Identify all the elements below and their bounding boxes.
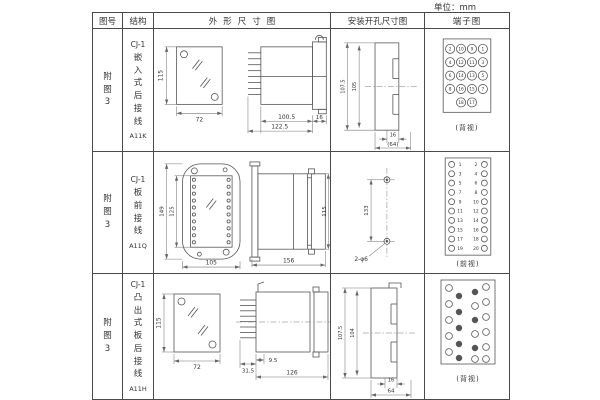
svg-text:9: 9: [459, 199, 462, 205]
dim-label-offset: 9.5: [268, 358, 277, 364]
svg-text:9: 9: [471, 46, 474, 52]
fig-no-text: 附图3: [103, 193, 112, 231]
spec-table: 图号 结构 外形尺寸图 安装开孔尺寸图 端子图 附图3 CJ-1 嵌入式后接线 …: [92, 12, 510, 400]
svg-text:20: 20: [473, 246, 479, 252]
col-header-terminal: 端子图: [425, 13, 509, 29]
side-dimensions: 156 115: [251, 174, 328, 267]
col-header-outline: 外形尺寸图: [154, 13, 331, 29]
outline-diagram-a11k: 115 72: [154, 29, 331, 151]
outline-cell-a11k: 115 72: [154, 29, 331, 152]
mounting-dimensions: 107.5 105 16 (64): [340, 43, 410, 150]
front-dimensions: 115 72: [157, 47, 222, 124]
svg-text:3: 3: [482, 60, 485, 66]
svg-text:6: 6: [475, 181, 478, 187]
side-dimensions: 100.5 122.5 16: [247, 96, 325, 133]
dim-label-body-len: 100.5: [278, 114, 295, 121]
mounting-dimensions: 107.5 104 16 64: [338, 288, 411, 398]
dim-label-pin-len: 31.5: [241, 369, 254, 375]
svg-text:8: 8: [475, 190, 478, 196]
svg-text:17: 17: [457, 237, 463, 243]
side-dimensions: 31.5 9.5 126: [240, 340, 328, 380]
mounting-diagram-a11h: 107.5 104 16 64: [331, 274, 425, 399]
svg-text:7: 7: [459, 190, 462, 196]
dim-label-outer-h: 107.5: [338, 326, 344, 340]
dim-label-body-h: 115: [321, 206, 327, 216]
col-header-mounting-label: 安装开孔尺寸图: [348, 15, 408, 27]
svg-text:11: 11: [469, 60, 475, 66]
mounting-diagram-a11q: 133 2-φ6: [331, 152, 425, 273]
dim-label-slot-w: 16: [387, 378, 393, 384]
svg-text:15: 15: [469, 87, 475, 93]
svg-text:5: 5: [482, 73, 485, 79]
dim-label-width: 64: [387, 389, 394, 395]
outline-cell-a11h: 115 72 31.5: [154, 274, 331, 399]
fig-no-text: 附图3: [103, 317, 112, 355]
mounting-cell-a11k: 107.5 105 16 (64): [331, 29, 425, 152]
dim-label-width: (64): [387, 142, 398, 148]
terminal-caption: (背视): [455, 123, 478, 132]
terminal-diagram-a11h: (背视): [425, 274, 509, 399]
svg-text:14: 14: [473, 218, 479, 224]
front-dimensions: 115 72: [155, 294, 220, 371]
dim-label-outer-h: 107.5: [340, 79, 346, 93]
dim-label-inner-h: 105: [352, 82, 358, 91]
cutout-profile: [371, 283, 401, 378]
dim-label-front-w: 72: [195, 117, 203, 124]
col-header-structure: 结构: [123, 13, 154, 29]
dim-label-front-w: 105: [205, 260, 217, 267]
structure-title: CJ-1: [131, 175, 146, 184]
svg-text:13: 13: [469, 73, 475, 79]
dim-label-body-len: 156: [282, 258, 294, 265]
dim-label-total-len: 122.5: [271, 124, 288, 131]
svg-text:8: 8: [449, 87, 452, 93]
svg-text:12: 12: [458, 60, 464, 66]
mounting-diagram-a11k: 107.5 105 16 (64): [331, 29, 425, 151]
model-code: A11K: [130, 132, 147, 140]
terminal-diagram-a11k: 21091 412113 614135 816157 1817 (背视): [425, 29, 509, 151]
col-header-fig-no-label: 图号: [99, 15, 116, 27]
svg-text:10: 10: [458, 46, 464, 52]
model-code: A11H: [129, 385, 147, 393]
front-view: [174, 294, 220, 352]
svg-text:2: 2: [449, 46, 452, 52]
structure-title: CJ-1: [131, 40, 146, 49]
svg-text:4: 4: [475, 171, 478, 177]
fig-no-cell-a11q: 附图3: [93, 152, 123, 274]
terminal-block: [445, 158, 491, 255]
svg-text:12: 12: [473, 209, 479, 215]
side-view: [249, 162, 324, 261]
svg-text:10: 10: [473, 199, 479, 205]
structure-name: 凸出式板后接线: [134, 292, 143, 381]
side-view: [247, 35, 325, 113]
mounting-dimensions: 133 2-φ6: [354, 180, 384, 263]
front-dimensions: 149 125 105: [159, 164, 239, 269]
front-view: [182, 164, 240, 259]
outline-diagram-a11q: 149 125 105: [154, 152, 331, 273]
model-code: A11Q: [129, 242, 147, 250]
structure-name: 嵌入式后接线: [134, 52, 143, 129]
svg-text:19: 19: [457, 246, 463, 252]
terminal-caption: (前视): [456, 259, 479, 268]
col-header-outline-label: 外形尺寸图: [203, 15, 282, 27]
dim-label-front-w: 72: [193, 364, 201, 371]
svg-text:16: 16: [458, 87, 464, 93]
structure-cell-a11q: CJ-1 板前接线 A11Q: [123, 152, 154, 274]
svg-text:5: 5: [459, 181, 462, 187]
svg-text:18: 18: [458, 100, 464, 106]
terminal-circles: [449, 161, 488, 251]
dim-label-inner-h: 125: [169, 206, 175, 216]
terminal-cell-a11k: 21091 412113 614135 816157 1817 (背视): [425, 29, 509, 152]
outline-cell-a11q: 149 125 105: [154, 152, 331, 274]
front-terminal-dots: [192, 178, 230, 244]
front-view: [176, 47, 222, 105]
holes-label: 2-φ6: [354, 256, 368, 263]
fig-no-cell-a11k: 附图3: [93, 29, 123, 152]
side-view: [240, 282, 328, 357]
col-header-structure-label: 结构: [129, 15, 146, 27]
dim-label-total-len: 126: [286, 370, 298, 377]
fig-no-text: 附图3: [103, 71, 112, 109]
svg-text:1: 1: [459, 162, 462, 168]
svg-text:16: 16: [473, 227, 479, 233]
svg-text:6: 6: [449, 73, 452, 79]
svg-text:4: 4: [449, 60, 452, 66]
terminal-cell-a11h: (背视): [425, 274, 509, 399]
dim-label-flange-w: 16: [315, 115, 322, 121]
terminal-numbers: 12 34 56 78 910 1112 1314 1516 1718 1920: [457, 162, 479, 252]
svg-text:1: 1: [482, 46, 485, 52]
structure-cell-a11k: CJ-1 嵌入式后接线 A11K: [123, 29, 154, 152]
structure-name: 板前接线: [134, 187, 143, 238]
svg-text:15: 15: [457, 227, 463, 233]
dim-label-front-h: 115: [155, 317, 162, 329]
svg-text:13: 13: [457, 218, 463, 224]
svg-text:14: 14: [458, 73, 464, 79]
dim-label-outer-h: 149: [159, 206, 165, 217]
dim-label-slot-w: 16: [389, 133, 395, 139]
terminal-numbers: 21091 412113 614135 816157 1817: [449, 46, 485, 106]
terminal-diagram-a11q: 12 34 56 78 910 1112 1314 1516 1718 1920…: [425, 152, 509, 273]
col-header-fig-no: 图号: [93, 13, 123, 29]
col-header-mounting: 安装开孔尺寸图: [331, 13, 425, 29]
col-header-terminal-label: 端子图: [453, 15, 482, 27]
mounting-cell-a11h: 107.5 104 16 64: [331, 274, 425, 399]
svg-text:3: 3: [459, 171, 462, 177]
svg-text:18: 18: [473, 237, 479, 243]
terminal-block: [441, 280, 495, 364]
mounting-cell-a11q: 133 2-φ6: [331, 152, 425, 274]
structure-cell-a11h: CJ-1 凸出式板后接线 A11H: [123, 274, 154, 399]
dim-label-inner-h: 104: [350, 328, 356, 338]
dim-label-front-h: 115: [157, 70, 164, 82]
terminal-caption: (背视): [456, 374, 479, 383]
terminal-pins: [446, 284, 490, 363]
terminal-cell-a11q: 12 34 56 78 910 1112 1314 1516 1718 1920…: [425, 152, 509, 274]
structure-title: CJ-1: [131, 280, 146, 289]
svg-text:11: 11: [457, 209, 463, 215]
svg-text:17: 17: [469, 100, 475, 106]
svg-text:2: 2: [475, 162, 478, 168]
svg-text:7: 7: [482, 87, 485, 93]
dim-label-hole-spacing: 133: [364, 205, 370, 216]
outline-diagram-a11h: 115 72 31.5: [154, 274, 331, 399]
fig-no-cell-a11h: 附图3: [93, 274, 123, 399]
